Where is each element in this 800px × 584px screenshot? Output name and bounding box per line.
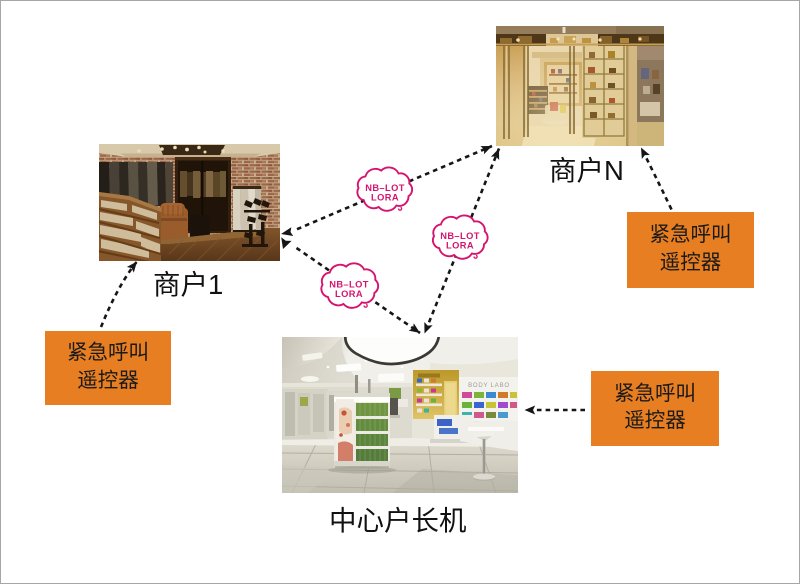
svg-text:LORA: LORA [371,192,399,202]
svg-text:NB–LOT: NB–LOT [365,183,405,193]
svg-text:LORA: LORA [446,240,474,250]
svg-text:NB–LOT: NB–LOT [329,279,369,289]
svg-text:NB–LOT: NB–LOT [440,231,480,241]
svg-text:LORA: LORA [335,289,363,299]
